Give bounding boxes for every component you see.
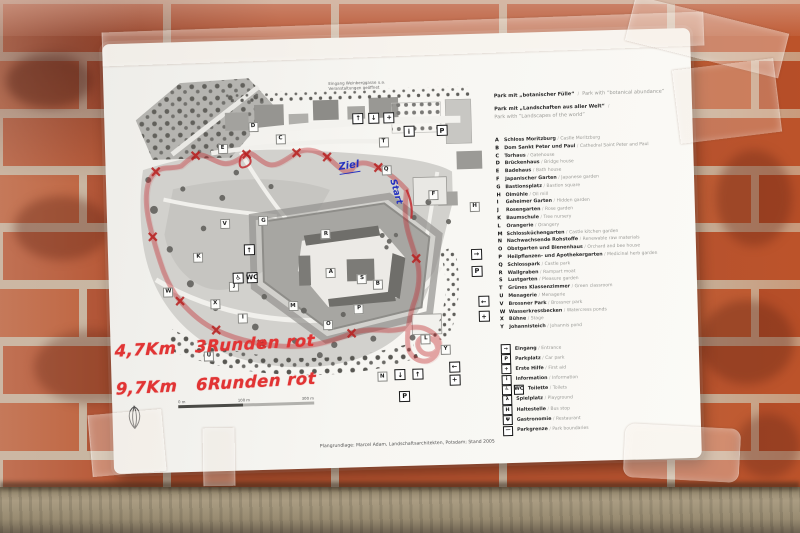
legend-name-en: Orchard and bee house [587, 244, 640, 250]
legend-separator: / [535, 223, 537, 228]
ziel-label: Ziel [338, 159, 361, 175]
tape-strip [202, 428, 235, 487]
legend-list: A Schloss Moritzburg / Castle Moritzburg… [495, 132, 690, 332]
legend-separator: / [564, 308, 566, 313]
legend-separator: / [542, 356, 544, 361]
legend-separator: / [545, 396, 547, 401]
legend-name-en: Rose garden [545, 206, 573, 212]
legend-key: I [497, 199, 506, 205]
map-marker: V [220, 219, 230, 229]
legend-name-en: Bridge house [544, 160, 574, 166]
down-arrow-icon: ↓ [395, 369, 406, 380]
legend-icon-en: Entrance [541, 345, 561, 351]
legend-separator: / [553, 417, 555, 422]
legend-key: A [495, 137, 504, 143]
legend-separator: / [566, 230, 568, 235]
parking-icon: P [399, 391, 410, 402]
legend-separator: / [547, 407, 549, 412]
legend-name-de: Wallgraben [508, 270, 539, 276]
legend-name-de: Bühne [509, 317, 526, 322]
brick-patch [6, 54, 92, 108]
map-marker: A [326, 268, 336, 278]
legend-header1-de: Park mit „botanischer Fülle“ [494, 91, 575, 99]
legend-separator: / [545, 366, 547, 371]
legend-key: W [500, 309, 509, 315]
wheelchair-icon: ♿ [233, 273, 244, 284]
legend-icon: i [502, 375, 512, 385]
legend-name-en: Brossner park [551, 300, 582, 306]
map-marker: S [357, 273, 367, 283]
legend-icon-de: Haltestelle [516, 407, 546, 413]
legend-key: Y [500, 324, 509, 330]
map-marker: X [210, 299, 220, 309]
legend-separator: / [539, 277, 541, 282]
legend-key: J [497, 207, 506, 213]
legend-name-de: Nachwachsende Rohstoffe [507, 237, 578, 244]
legend-icon-de: Gastronomie [517, 417, 552, 423]
legend-icon-de: Information [516, 376, 548, 382]
legend-name-en: Medicinal herb garden [607, 251, 658, 257]
up-arrow-icon: ↑ [412, 369, 423, 380]
legend-icon: Ψ [503, 415, 513, 425]
brick-patch [716, 150, 792, 246]
legend-name-de: Ölmühle [505, 192, 528, 198]
legend-name-en: Rampart moat [543, 269, 576, 275]
legend-name-de: Geheimer Garten [506, 199, 552, 205]
legend-icon: λ [502, 395, 512, 405]
legend-name-de: Brückenhaus [505, 161, 540, 167]
map-marker: I [238, 313, 248, 323]
legend-icon: + [501, 364, 511, 374]
legend-separator: / [542, 262, 544, 267]
legend-icon-en: Information [552, 375, 578, 381]
first-aid-icon: + [449, 374, 460, 385]
legend-icon-list: → Eingang / Entrance P Parkplatz / Car p… [501, 339, 693, 436]
map-marker: N [377, 372, 387, 382]
legend-icon: ♿ [502, 385, 512, 395]
map-marker: O [323, 320, 333, 330]
legend-key: R [499, 270, 508, 276]
legend-icon-de: Parkplatz [515, 356, 541, 362]
legend-icon-de: Eingang [515, 346, 537, 352]
legend-separator: / [604, 252, 606, 257]
legend-separator: / [527, 153, 529, 158]
legend-key: P [498, 254, 507, 260]
legend-separator: / [608, 104, 610, 109]
left-arrow-icon: ← [478, 296, 489, 307]
legend-name-en: Johannis pond [550, 323, 582, 329]
legend-key: U [499, 293, 508, 299]
map-legend: Park mit „botanischer Fülle“ / Park with… [490, 28, 702, 463]
legend-name-en: Tree nursery [543, 214, 571, 220]
legend-separator: / [549, 376, 551, 381]
wc-icon: WC [246, 272, 257, 283]
legend-key: V [500, 301, 509, 307]
legend-name-de: Obstgarten und Bienenhaus [507, 245, 583, 252]
legend-header2-de: Park mit „Landschaften aus aller Welt“ [494, 103, 605, 112]
legend-name-de: Baumschule [506, 215, 539, 221]
legend-separator: / [553, 199, 555, 204]
park-map-poster: Eingang Weinberggasse u.a. Veranstaltung… [102, 28, 702, 474]
legend-icon-de: Erste Hilfe [515, 366, 543, 372]
entrance-icon: → [471, 249, 482, 260]
left-arrow-icon: ← [449, 361, 460, 372]
legend-icon-en: Playground [548, 396, 573, 402]
legend-header2-en: Park with “Landscapes of the world” [494, 111, 585, 120]
legend-name-en: Pleasure garden [542, 276, 579, 282]
legend-icon-de: Spielplatz [516, 397, 543, 403]
scale-label-100: 100 m [238, 398, 250, 403]
map-marker: B [373, 279, 383, 289]
legend-separator: / [584, 245, 586, 250]
legend-name-en: Gatehouse [530, 152, 554, 158]
legend-name-de: Brossner Park [509, 301, 547, 307]
legend-key: B [495, 145, 504, 151]
legend-separator: / [541, 160, 543, 165]
legend-separator: / [529, 192, 531, 197]
legend-key: L [497, 223, 506, 229]
legend-name-de: Menagerie [508, 293, 537, 299]
legend-separator: / [548, 301, 550, 306]
mortar-ledge [0, 487, 800, 533]
legend-separator: / [550, 386, 552, 391]
parking-icon: P [471, 266, 482, 277]
tape-strip [623, 423, 742, 483]
map-marker: Q [381, 165, 391, 175]
legend-name-en: Renewable raw materials [583, 236, 640, 243]
tape-strip [672, 58, 782, 144]
map-marker: P [354, 304, 364, 314]
legend-icon-en: First aid [548, 365, 566, 370]
parking-icon: P [436, 125, 447, 136]
legend-key: Q [498, 262, 507, 268]
legend-name-de: Schloss Moritzburg [504, 137, 556, 143]
legend-name-en: Watercress ponds [567, 307, 607, 313]
legend-name-de: Grünes Klassenzimmer [508, 284, 570, 291]
legend-key: T [499, 285, 508, 291]
legend-key: E [496, 168, 505, 174]
map-marker: H [469, 202, 479, 212]
up-arrow-icon: ↑ [244, 244, 255, 255]
legend-separator: / [549, 427, 551, 432]
legend-icon: P [501, 354, 511, 364]
legend-name-de: Orangerie [506, 223, 533, 229]
legend-name-en: Bastion square [546, 183, 580, 189]
map-marker: T [378, 137, 388, 147]
legend-key: N [498, 238, 507, 244]
legend-key: K [497, 215, 506, 221]
legend-separator: / [538, 293, 540, 298]
legend-name-de: Schlosspark [507, 262, 540, 268]
legend-key: F [496, 176, 505, 182]
legend-separator: / [557, 137, 559, 142]
legend-icon-en: Toilets [553, 386, 567, 391]
legend-name-de: Badehaus [505, 169, 532, 175]
map-marker: K [193, 252, 203, 262]
map-marker: L [421, 334, 431, 344]
map-marker: C [275, 134, 285, 144]
information-icon: i [403, 126, 414, 137]
legend-key: G [496, 184, 505, 190]
legend-name-en: Castle Moritzburg [560, 135, 600, 141]
legend-separator: / [558, 176, 560, 181]
legend-separator: / [528, 317, 530, 322]
legend-icon-en: Restaurant [556, 416, 581, 422]
legend-name-en: Japanese garden [561, 174, 599, 180]
legend-name-de: Dom Sankt Peter und Paul [504, 144, 575, 151]
legend-icon: — [503, 425, 513, 435]
legend-name-en: Stage [531, 316, 544, 321]
legend-icon-en: Bus stop [550, 406, 570, 412]
legend-header: Park mit „botanischer Fülle“ / Park with… [494, 88, 685, 121]
map-marker: Y [440, 344, 450, 354]
legend-icon-en: Car park [545, 355, 564, 361]
legend-key: O [498, 246, 507, 252]
legend-name-de: Wasserkressbecken [509, 308, 563, 314]
legend-icon: → [501, 344, 511, 354]
legend-header1-en: Park with “botanical abundance” [582, 89, 664, 97]
first-aid-icon: + [384, 112, 395, 123]
legend-name-de: Rosengarten [506, 207, 541, 213]
map-marker: R [321, 229, 331, 239]
legend-icon-de: Toilette [528, 386, 548, 392]
legend-name-en: Hidden garden [557, 198, 590, 204]
map-marker: F [428, 190, 438, 200]
legend-name-en: Castle kitchen garden [569, 229, 618, 235]
legend-separator: / [547, 324, 549, 329]
legend-separator: / [540, 270, 542, 275]
legend-separator: / [533, 168, 535, 173]
legend-name-en: Menagerie [541, 292, 565, 298]
legend-separator: / [572, 284, 574, 289]
legend-key: C [495, 153, 504, 159]
legend-name-en: Oil mill [532, 191, 548, 196]
map-marker: M [288, 301, 298, 311]
legend-name-en: Castle park [545, 261, 571, 267]
legend-separator: / [543, 184, 545, 189]
legend-icon-secondary: WC [514, 384, 524, 394]
legend-header-line1: Park mit „botanischer Fülle“ / Park with… [494, 88, 684, 101]
legend-separator: / [578, 92, 580, 97]
map-area: Eingang Weinberggasse u.a. Veranstaltung… [102, 33, 502, 474]
first-aid-icon: + [478, 311, 489, 322]
legend-separator: / [538, 346, 540, 351]
legend-name-en: Cathedral Saint Peter and Paul [580, 142, 649, 149]
legend-key: H [496, 192, 505, 198]
map-marker: G [258, 216, 268, 226]
scale-label-0: 0 m [178, 399, 185, 404]
legend-key: M [498, 231, 507, 237]
legend-name-de: Bastionsplatz [505, 184, 542, 190]
legend-icon: H [502, 405, 512, 415]
legend-name-de: Torhaus [504, 153, 525, 159]
map-marker: E [217, 144, 227, 154]
legend-name-de: Johannisteich [509, 324, 546, 330]
tape-strip [87, 409, 166, 477]
legend-name-en: Bath house [536, 168, 562, 174]
legend-name-de: Lustgarten [508, 278, 538, 284]
brick-patch [14, 196, 109, 260]
legend-separator: / [540, 215, 542, 220]
legend-icon-de: Parkgrenze [517, 427, 548, 433]
brick-patch [700, 300, 794, 384]
legend-name-de: Japanischer Garten [505, 176, 557, 182]
legend-name-de: Schlossküchengarten [507, 230, 565, 237]
legend-key: D [496, 160, 505, 166]
legend-key: X [500, 316, 509, 322]
up-arrow-icon: ↑ [352, 113, 363, 124]
brick-patch [736, 414, 800, 478]
scale-label-300: 300 m [302, 396, 314, 401]
legend-name-en: Green classroom [575, 283, 613, 289]
legend-separator: / [542, 207, 544, 212]
legend-name-en: Orangery [538, 222, 559, 228]
legend-icon-en: Park boundaries [552, 426, 588, 432]
down-arrow-icon: ↓ [368, 113, 379, 124]
legend-separator: / [577, 144, 579, 149]
map-marker: D [248, 122, 258, 132]
legend-separator: / [580, 237, 582, 242]
legend-key: S [499, 277, 508, 283]
map-marker: W [163, 287, 173, 297]
